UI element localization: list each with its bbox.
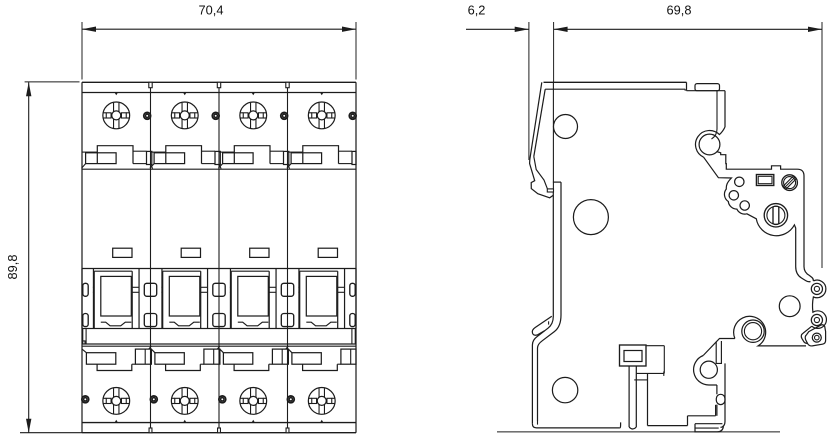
svg-text:69,8: 69,8 <box>667 3 692 18</box>
svg-text:6,2: 6,2 <box>468 3 486 18</box>
svg-text:89,8: 89,8 <box>5 255 20 280</box>
svg-text:70,4: 70,4 <box>199 3 224 18</box>
